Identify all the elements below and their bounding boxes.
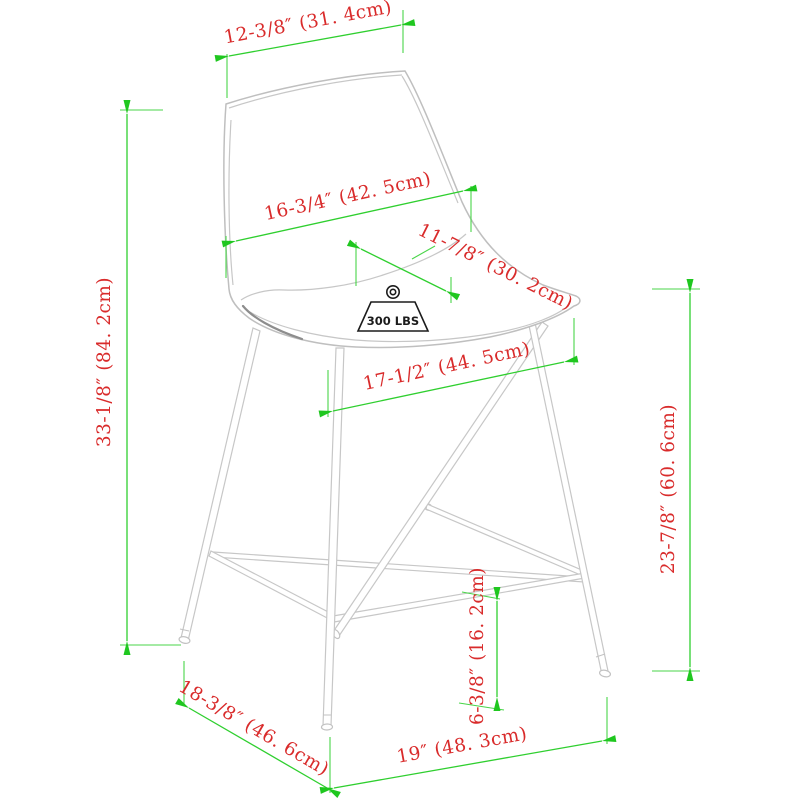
weight-ring-inner — [390, 289, 395, 294]
dimension-label-overall-height: 33-1/8″ (84. 2cm) — [94, 277, 115, 447]
stool-dimension-diagram: 300 LBS 12-3/8″ (31. 4cm) 33-1/8″ (84. 2… — [0, 0, 800, 800]
rear-left-leg — [181, 328, 260, 641]
diagram-canvas: 300 LBS 12-3/8″ (31. 4cm) 33-1/8″ (84. 2… — [0, 0, 800, 800]
dimension-overall-height: 33-1/8″ (84. 2cm) — [94, 110, 181, 645]
dimension-label-base-depth: 18-3/8″ (46. 6cm) — [175, 676, 333, 780]
weight-capacity-label: 300 LBS — [367, 314, 419, 328]
dimension-seat-height: 23-7/8″ (60. 6cm) — [652, 289, 700, 671]
dimension-label-footrest-height: 6-3/8″ (16. 2cm) — [467, 567, 488, 725]
footrest-cross-brace — [213, 552, 584, 582]
front-right-foot — [599, 669, 611, 678]
footrest-assembly — [209, 503, 585, 622]
front-left-foot — [321, 724, 332, 730]
dimension-label-seat-height: 23-7/8″ (60. 6cm) — [658, 404, 679, 574]
stool-drawing: 300 LBS — [178, 71, 611, 730]
dimension-base-depth: 18-3/8″ (46. 6cm) — [175, 661, 333, 788]
dimension-label-base-width: 19″ (48. 3cm) — [395, 723, 529, 767]
front-left-leg — [323, 348, 344, 726]
footrest-right-bar — [426, 504, 584, 576]
